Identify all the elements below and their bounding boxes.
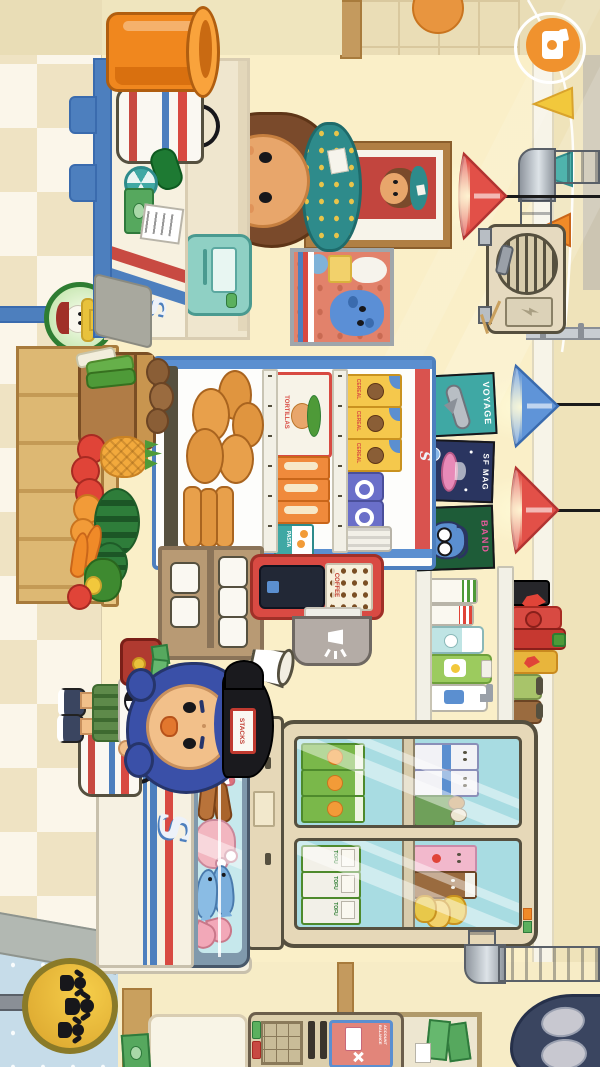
tube-stripes-green [462,580,476,602]
photo-camera-icon [542,31,563,59]
kid-hair-bump [124,742,154,778]
crinkle-bag[interactable] [344,526,392,552]
atm-keypad[interactable] [261,1021,303,1065]
bag-stripe-red [178,89,187,161]
bear-lotion-bottle[interactable] [428,626,484,654]
green-jar[interactable] [510,674,542,700]
deli-fridge: TOFU TOFU TOFU [278,720,538,948]
fridge-door-right[interactable]: TOFU TOFU TOFU [294,838,522,930]
bear-face [367,447,384,464]
duct-elbow [518,148,556,202]
pipe-flange [578,323,584,340]
atm-screen: ACCOUNT BALANCE [329,1020,393,1067]
bear-face [367,383,384,400]
sriracha-bottle[interactable] [510,628,566,650]
poster-softserve [351,257,387,283]
wood-beam [340,0,362,59]
niche-cup [267,581,279,593]
ufo-dome [455,462,467,480]
soap-label [444,690,464,704]
paper-roll[interactable] [218,556,248,588]
star-dot [464,488,467,491]
magazine-title: VOYAGE [480,374,493,432]
jar-lid [536,703,543,719]
store-scene: EMPLOYEE OF THE MONTH [0,0,600,1067]
magazine-title: BAND [478,507,490,567]
poster-stripe-red [303,252,308,342]
condiment-shelf-board [497,566,514,728]
lamp-cord [503,195,600,198]
bear-face [367,415,384,432]
tortilla-label: TORTILLAS [282,375,289,449]
photo-icon-notch [559,28,569,41]
indicator-light-green [523,921,532,933]
pet-eye [357,320,364,326]
flame-label [524,656,540,668]
atm-machine[interactable]: ACCOUNT BALANCE [248,1012,404,1067]
photo-icon-dot [547,40,557,50]
hat-tag [327,148,349,175]
sparkle-line [334,651,337,659]
coffee-dispenser[interactable] [292,616,372,666]
tofu-pack: TOFU [301,897,361,925]
cap-patch-text: STACKS [238,718,245,744]
blank-wall-sign [148,1014,248,1067]
kid-hair-bump [126,668,156,702]
cashier-eye [259,192,272,203]
shelf-side-panel [164,360,432,369]
donut-pack[interactable] [344,472,384,502]
grocery-shelf-unit: S CEREAL CEREAL CEREAL TOR [152,356,436,570]
coffee-niche [259,565,325,609]
polar-bear-icon [444,634,458,648]
pasta-label: PASTA [285,526,291,552]
register-screen [211,247,237,293]
cashier-eye [259,152,272,163]
cereal-splash [389,376,400,389]
pennant-yellow [534,88,573,118]
dollar-on-sill[interactable] [121,1033,152,1067]
customer-kid[interactable]: STACKS [60,630,280,810]
bill-oval [130,1046,143,1061]
poster-pet [330,290,384,336]
deli-s-logo: S [150,813,197,842]
paper-roll[interactable] [218,586,248,618]
red-pepper[interactable] [67,584,92,610]
heater-plaque [505,297,553,327]
oj-carton [301,795,365,823]
pineapple-bucket-hat [302,122,362,252]
indicator-light-orange [523,908,532,920]
stacked-bun [183,486,202,548]
duck-label [444,659,466,677]
paper-roll[interactable] [170,562,200,594]
box-window [284,484,318,492]
photo-hat-tag [416,184,426,195]
can-highlight [123,21,197,31]
pet-spot [365,318,374,328]
receipt[interactable] [140,203,185,244]
duck-shampoo-bottle[interactable] [428,654,492,684]
pet-spot [348,296,358,308]
spaghetti-box[interactable] [274,500,330,524]
tortilla-pack[interactable]: TORTILLAS [272,372,332,458]
lamp-cord [555,403,600,406]
sombrero [307,395,321,437]
camera-button[interactable] [514,12,586,84]
photo-face [380,173,408,204]
orange-dot [297,540,305,548]
paper-roll[interactable] [170,596,200,628]
family-sign[interactable] [22,958,118,1054]
atm-button-green[interactable] [252,1021,261,1039]
cereal-splash [389,408,400,421]
ketchup-bottle[interactable] [510,606,562,630]
bag-stripe-red [129,89,137,161]
cap-brim [224,660,264,690]
cereal-splash [389,440,400,453]
bottle-cap [481,660,492,678]
photo-eye [393,192,398,196]
bread-pile[interactable] [180,370,264,550]
toothpaste-tube[interactable] [428,604,474,626]
shelf-board [262,369,278,553]
monster-headphones [457,525,469,559]
spaghetti-box[interactable] [274,456,330,480]
mustard-bottle[interactable] [510,650,558,674]
sparkle-line [340,649,347,657]
camera-button-face [526,18,580,72]
card-slot [203,249,207,285]
tube-stripes-red [459,606,472,624]
donut-ring [355,508,374,527]
green-cap [552,633,566,647]
magazine-title: SF MAG [479,443,490,501]
dome-bulb [539,1004,587,1040]
trash-can-rim [186,6,220,98]
donut-ring [355,480,374,499]
potato [146,408,169,434]
oj-carton [301,769,365,797]
kid-mouth [160,716,178,737]
cereal-box[interactable]: CEREAL [344,374,402,408]
duck-icon [451,664,460,673]
pineapple[interactable] [100,436,148,478]
box-window [284,506,318,514]
sparkle-line [324,649,331,657]
monster-glasses [437,541,453,557]
pet-poster [290,248,394,346]
potato [149,382,174,412]
cereal-box[interactable]: CEREAL [344,438,402,472]
cereal-label: CEREAL [355,408,361,434]
plaque-symbol [521,305,539,318]
bun [186,428,224,484]
poster-stripe-blue [298,252,303,342]
poster-stripe-white [308,252,314,342]
cereal-box[interactable]: CEREAL [344,406,402,440]
atm-slot [308,1021,315,1059]
atm-slot [320,1021,327,1059]
price-tag [415,1043,431,1063]
shelf-top-cap: S [415,369,430,549]
pump-neck [480,694,488,702]
shelf-s-logo: S [416,451,432,461]
register-button[interactable] [226,293,237,308]
atm-button-red[interactable] [252,1041,261,1059]
monster-glasses [437,527,453,543]
hinge-mark [265,853,271,865]
kid-freckle [202,724,206,728]
dome-bulb [540,1037,588,1067]
counter-leg [69,164,97,202]
soap-pump-bottle[interactable] [428,684,488,712]
cereal-label: CEREAL [355,440,361,466]
trash-can-hole [199,20,212,78]
person-icon [56,1019,84,1041]
farmer-collar [56,302,69,334]
poster-cheese [328,255,352,283]
toothpaste-tube[interactable] [428,578,478,604]
spaghetti-box[interactable] [274,478,330,502]
card-register[interactable] [184,234,252,316]
counter-leg [69,96,97,134]
coffee-label: COFFEE [325,563,373,611]
cereal-label: CEREAL [355,376,361,402]
box-window [284,462,318,470]
shelf-board [332,369,348,553]
star-dot [470,450,473,453]
cup-glyph [328,628,343,646]
orange-dot [300,530,308,538]
fridge-door-left[interactable] [294,736,522,828]
atm-card-graphic [345,1027,362,1051]
kid-eye [183,702,196,713]
screenshot-stage: EMPLOYEE OF THE MONTH [0,0,600,1067]
kid-eye [183,738,196,749]
photo-eye [393,180,398,184]
lamp-cord [556,509,600,512]
cap-patch: STACKS [230,708,256,754]
toiletries-shelf-board [415,566,432,728]
jar-lid [536,677,543,695]
atm-screen-text: ACCOUNT BALANCE [378,1025,388,1065]
fridge-duct-vertical [498,946,600,982]
tomato-label [525,611,542,628]
coffee-label-text: COFFEE [332,565,339,605]
pet-eye [359,306,366,312]
framed-dollar [398,1012,482,1067]
person-icon [62,995,94,1017]
pasta-pack[interactable]: PASTA [274,524,314,558]
